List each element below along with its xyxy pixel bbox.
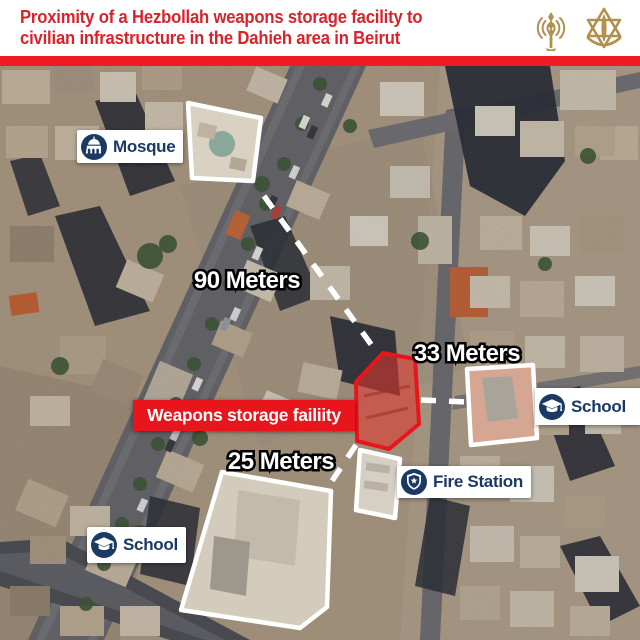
fire-station-label-text: Fire Station [433, 472, 523, 492]
fire-station-highlight-polygon [356, 450, 400, 518]
idf-spokesperson-antenna-icon [530, 6, 572, 52]
school-right-label: School [535, 388, 640, 425]
mosque-label: Mosque [77, 130, 183, 163]
distance-label-90m: 90 Meters [194, 267, 300, 294]
school-right-highlight-polygon [467, 365, 537, 445]
title-line-2: civilian infrastructure in the Dahieh ar… [20, 27, 422, 48]
mosque-highlight-polygon [188, 103, 261, 181]
mosque-icon [81, 134, 107, 160]
weapons-facility-label-text: Weapons storage failiity [147, 405, 341, 426]
header-divider-bar [0, 56, 640, 66]
distance-label-33m: 33 Meters [414, 340, 520, 367]
distance-label-25m: 25 Meters [228, 448, 334, 475]
mosque-label-text: Mosque [113, 137, 175, 157]
badge-icon [401, 469, 427, 495]
idf-emblem-icon [580, 6, 628, 52]
header: Proximity of a Hezbollah weapons storage… [0, 0, 640, 56]
school-right-label-text: School [571, 397, 626, 417]
fire-station-label: Fire Station [397, 466, 531, 498]
title-line-1: Proximity of a Hezbollah weapons storage… [20, 6, 422, 27]
weapons-facility-label: Weapons storage failiity [133, 400, 355, 431]
page-title: Proximity of a Hezbollah weapons storage… [20, 6, 422, 48]
school-icon [539, 394, 565, 420]
infographic: Proximity of a Hezbollah weapons storage… [0, 0, 640, 640]
school-bottom-label: School [87, 527, 186, 563]
school-icon [91, 532, 117, 558]
school-bottom-label-text: School [123, 535, 178, 555]
header-logos [530, 6, 628, 52]
